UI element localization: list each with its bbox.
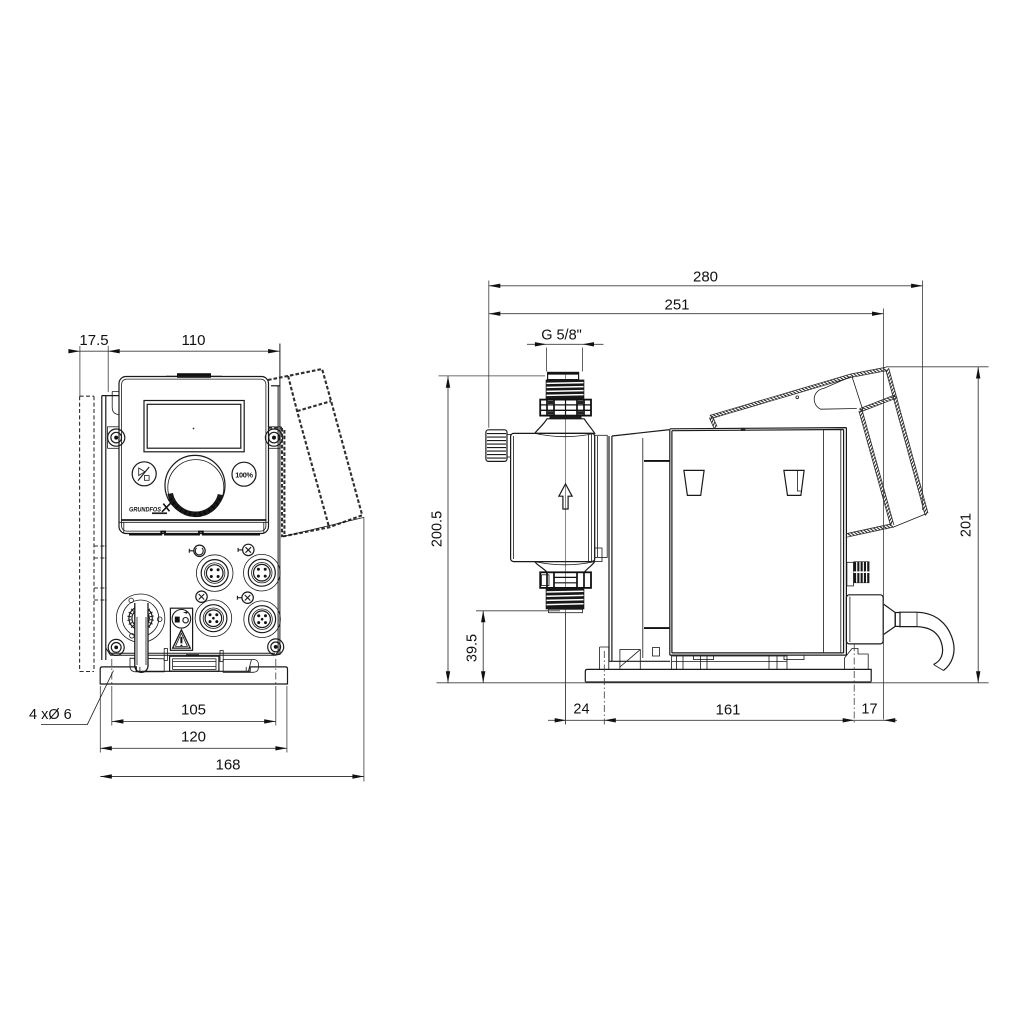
svg-text:39.5: 39.5 — [465, 634, 481, 662]
svg-text:168: 168 — [215, 757, 240, 774]
svg-text:280: 280 — [693, 269, 718, 286]
svg-text:24: 24 — [573, 702, 589, 718]
svg-text:201: 201 — [959, 513, 975, 537]
svg-text:17.5: 17.5 — [79, 332, 108, 349]
svg-text:100%: 100% — [235, 470, 253, 479]
svg-text:251: 251 — [664, 297, 689, 314]
svg-text:17: 17 — [861, 702, 877, 718]
svg-text:110: 110 — [182, 332, 206, 349]
svg-text:G 5/8": G 5/8" — [541, 328, 582, 344]
svg-text:4 xØ 6: 4 xØ 6 — [29, 707, 72, 723]
svg-text:105: 105 — [181, 702, 206, 719]
svg-text:161: 161 — [715, 702, 740, 719]
svg-text:200.5: 200.5 — [430, 511, 446, 547]
svg-text:120: 120 — [181, 729, 206, 746]
